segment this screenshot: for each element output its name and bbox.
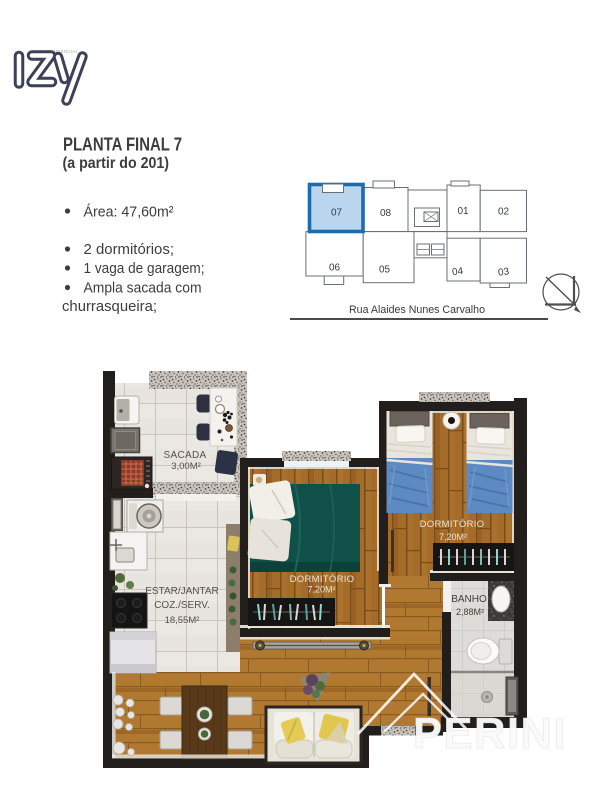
svg-text:2,88M²: 2,88M² (456, 607, 484, 617)
svg-text:08: 08 (380, 208, 392, 219)
svg-text:BANHO: BANHO (451, 594, 487, 605)
svg-text:PLANTA FINAL 7: PLANTA FINAL 7 (63, 135, 182, 155)
svg-text:18,55M²: 18,55M² (165, 615, 200, 626)
svg-text:01: 01 (457, 206, 469, 217)
svg-text:07: 07 (331, 208, 343, 219)
svg-text:Área: 47,60m²: Área: 47,60m² (84, 204, 174, 221)
svg-text:3,00M²: 3,00M² (171, 461, 201, 472)
svg-text:Ampla sacada com: Ampla sacada com (84, 280, 202, 297)
svg-text:(a partir do 201): (a partir do 201) (63, 155, 170, 172)
svg-text:04: 04 (451, 266, 464, 279)
svg-text:03: 03 (497, 266, 510, 279)
svg-text:7,20M²: 7,20M² (439, 532, 467, 542)
svg-text:DORMITÓRIO: DORMITÓRIO (290, 574, 355, 585)
svg-text:02: 02 (498, 207, 510, 218)
svg-text:1 vaga de garagem;: 1 vaga de garagem; (84, 260, 205, 277)
svg-text:06: 06 (329, 263, 341, 274)
svg-text:2 dormitórios;: 2 dormitórios; (84, 241, 175, 258)
svg-text:SACADA: SACADA (164, 450, 207, 461)
svg-text:DORMITÓRIO: DORMITÓRIO (420, 519, 485, 530)
svg-text:Rua Alaides Nunes Carvalho: Rua Alaides Nunes Carvalho (349, 304, 485, 316)
svg-text:COZ./SERV.: COZ./SERV. (154, 600, 210, 611)
svg-text:PERINI: PERINI (413, 710, 567, 758)
svg-text:7,20M²: 7,20M² (307, 585, 335, 595)
svg-text:ESTAR/JANTAR: ESTAR/JANTAR (145, 586, 219, 597)
svg-text:churrasqueira;: churrasqueira; (62, 298, 157, 315)
svg-text:05: 05 (379, 265, 391, 276)
